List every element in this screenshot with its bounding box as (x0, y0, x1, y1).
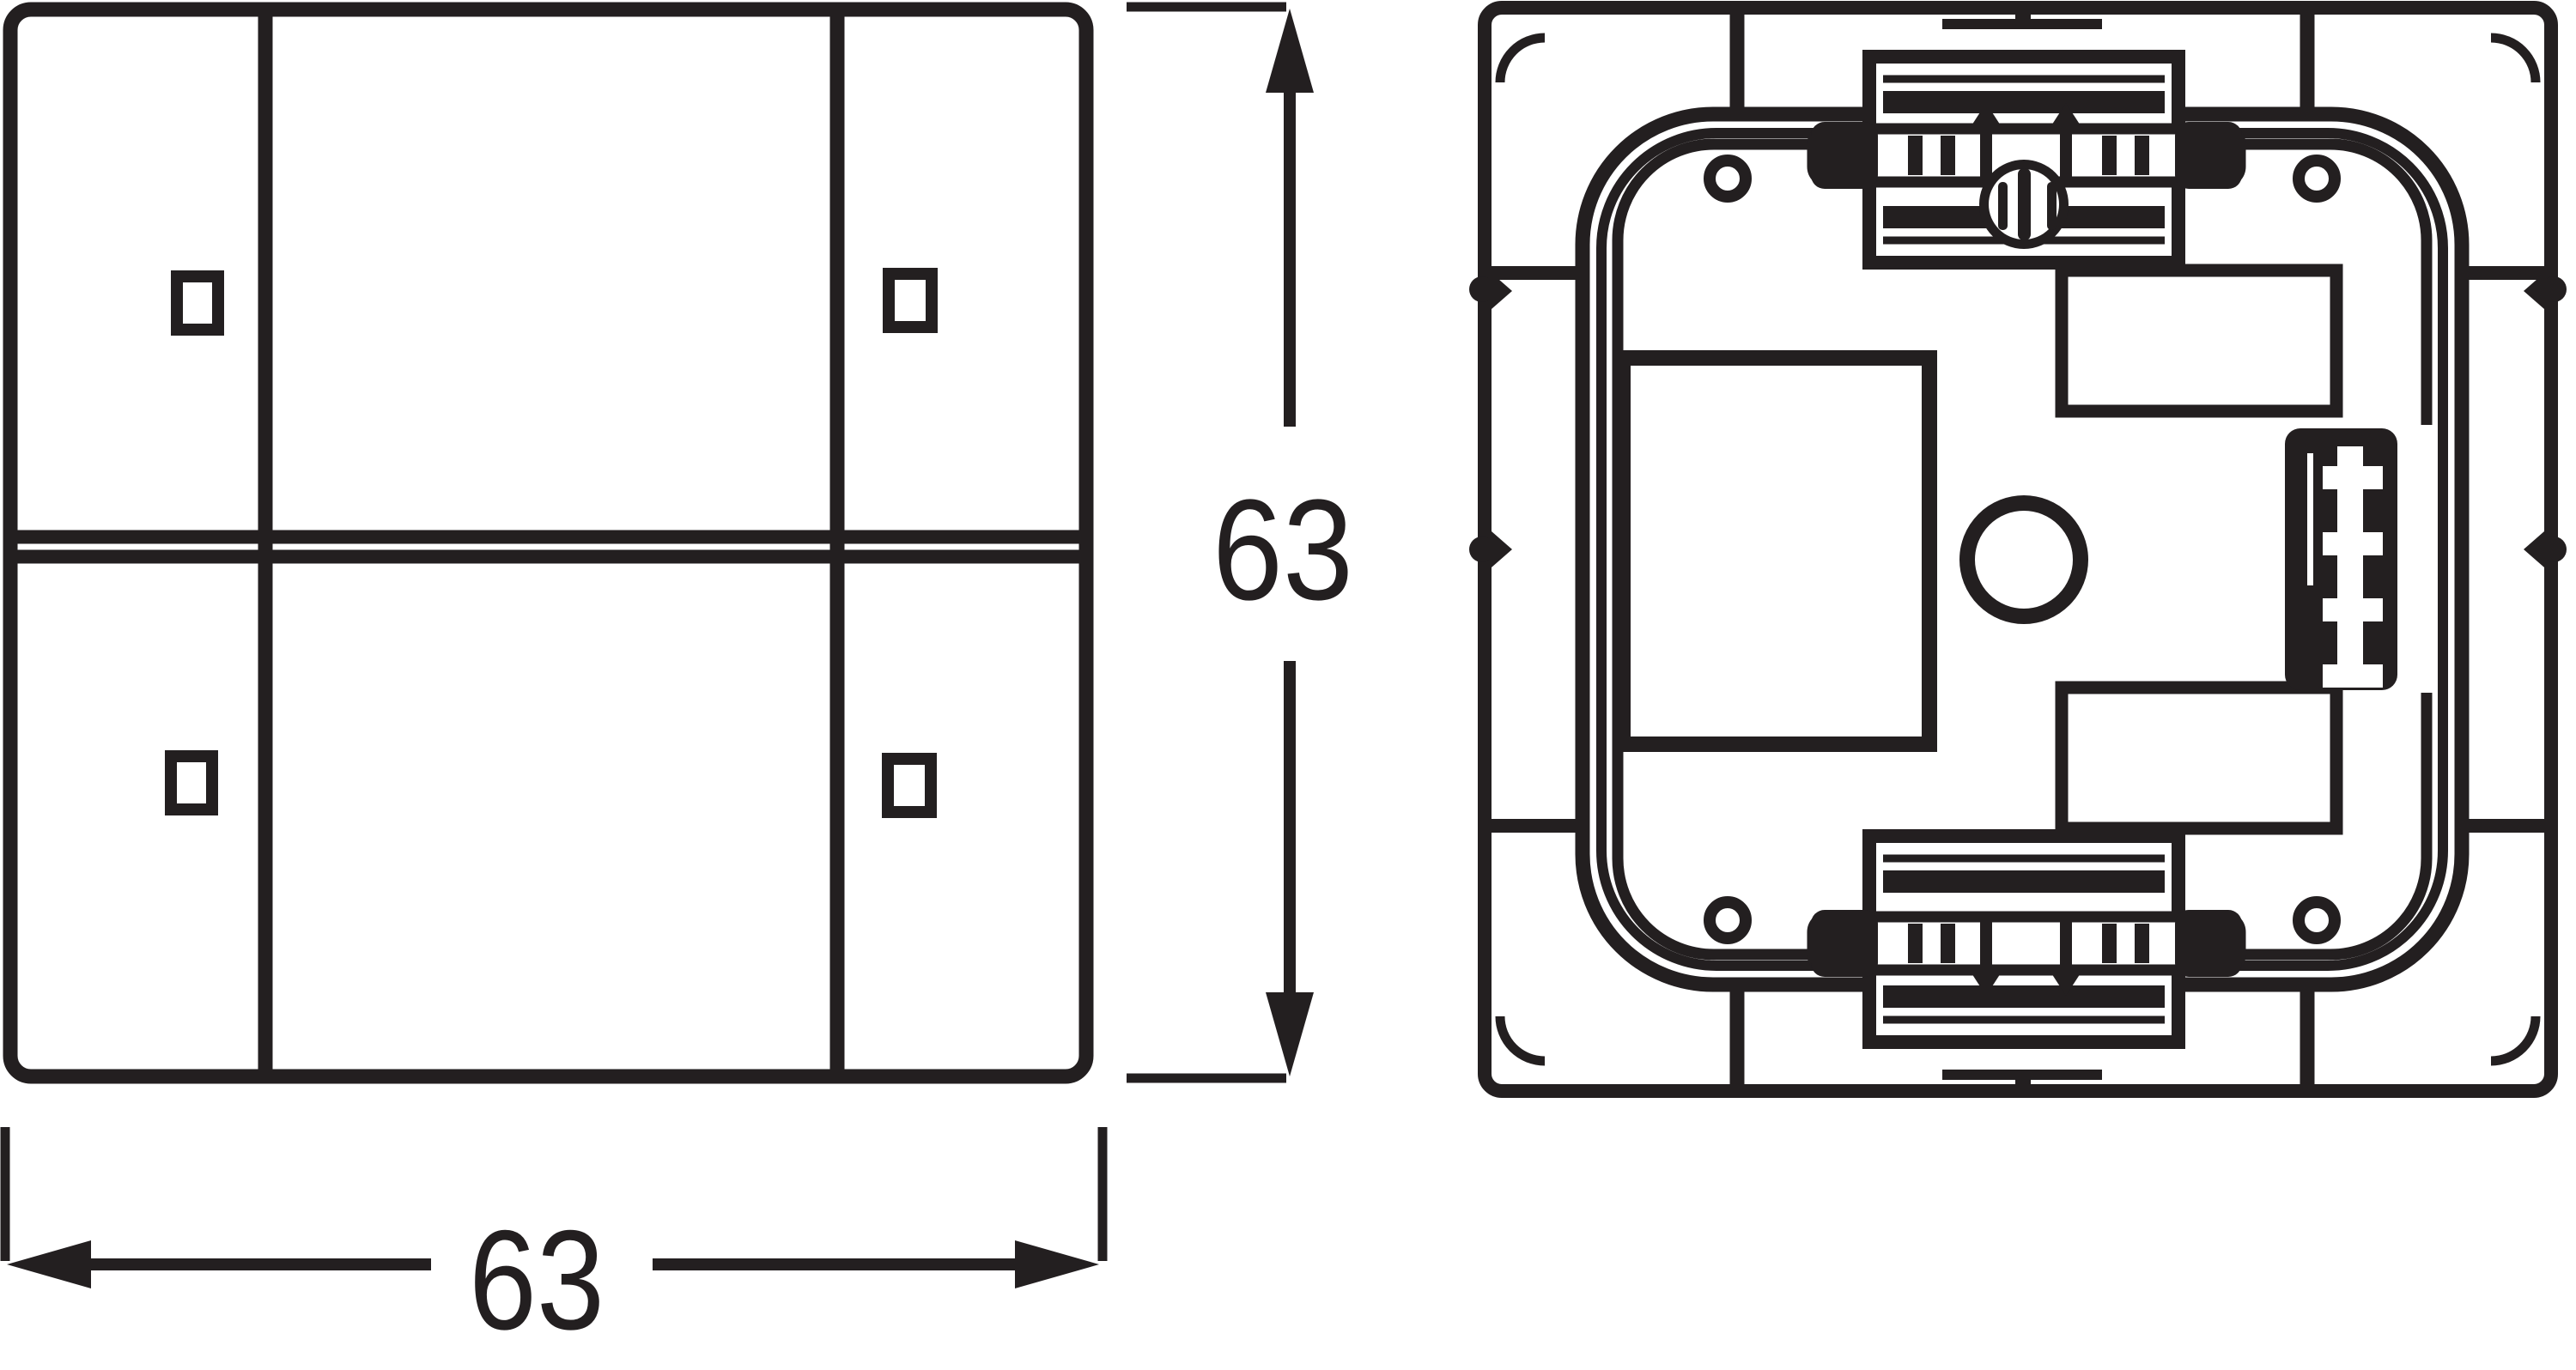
clamp-screw (1979, 160, 2069, 249)
bus-connector-pin-slot-2 (2323, 532, 2383, 555)
center-opening (1967, 503, 2081, 616)
clip-notch-left-upper (1469, 276, 1495, 302)
clip-notch-right-upper (2541, 276, 2567, 302)
width-arrowhead-left-icon (7, 1240, 91, 1288)
led-window-top-left (177, 276, 218, 330)
frame-corner-arc-top-right (2491, 38, 2536, 82)
led-window-bottom-left (171, 756, 212, 809)
clamp-stripe-band-upper (1883, 91, 2165, 113)
clip-notch-right-mid-point (2524, 531, 2544, 567)
claw-clamp-bottom (1737, 836, 2307, 1088)
back-view (1469, 8, 2567, 1091)
screw-hole-top-right (2299, 161, 2335, 197)
led-window-top-right (889, 274, 932, 327)
bus-connector-pin-slot-4 (2323, 664, 2383, 688)
screw-hole-top-left (1710, 161, 1746, 197)
claw-tooth-2 (1941, 136, 1955, 175)
height-dimension-label: 63 (1212, 470, 1353, 630)
claw-tooth-1 (1908, 136, 1923, 175)
height-arrowhead-up-icon (1266, 9, 1314, 93)
claw-tooth-3 (2102, 136, 2117, 175)
clip-notch-left-mid-point (1492, 531, 1512, 567)
width-dimension: 63 (5, 1127, 1103, 1359)
height-dimension: 63 (1127, 7, 1353, 1078)
clip-notch-right-mid (2541, 536, 2567, 562)
height-arrowhead-down-icon (1266, 992, 1314, 1076)
drawing-page: 63 63 (0, 0, 2576, 1370)
width-arrowhead-right-icon (1015, 1240, 1099, 1288)
frame-corner-arc-top-left (1500, 38, 1545, 82)
claw-band-cap-right (2175, 122, 2242, 189)
bus-connector-pin-slot-3 (2323, 598, 2383, 621)
bus-connector-slit (2307, 453, 2313, 585)
claw-tooth-4 (2135, 136, 2149, 175)
expansion-arrow-right-stem (2060, 129, 2072, 184)
screw-hole-bottom-right (2299, 902, 2335, 938)
front-view (5, 9, 1092, 1076)
bus-connector-pin-slot-1 (2323, 466, 2383, 489)
clamp-screw-slot-right (2047, 182, 2057, 230)
frame-corner-arc-bottom-right (2491, 1016, 2536, 1061)
technical-drawing-canvas: 63 63 (0, 0, 2576, 1370)
mounting-tab-bridge (2015, 10, 2031, 22)
label-area-bottom (2062, 688, 2336, 828)
plate-cutout (2416, 425, 2437, 693)
clamp-screw-slot-left (1998, 182, 2008, 230)
battery-compartment (1623, 358, 1929, 744)
bus-connector (2285, 428, 2397, 690)
width-dimension-label: 63 (469, 1201, 605, 1359)
claw-band-cap-left (1811, 122, 1878, 189)
led-window-bottom-right (888, 759, 931, 812)
screw-hole-bottom-left (1710, 902, 1746, 938)
label-area-top (2062, 270, 2336, 411)
clip-notch-left-mid (1469, 536, 1495, 562)
frame-corner-arc-bottom-left (1500, 1016, 1545, 1061)
clamp-screw-slot-center (2018, 168, 2031, 240)
